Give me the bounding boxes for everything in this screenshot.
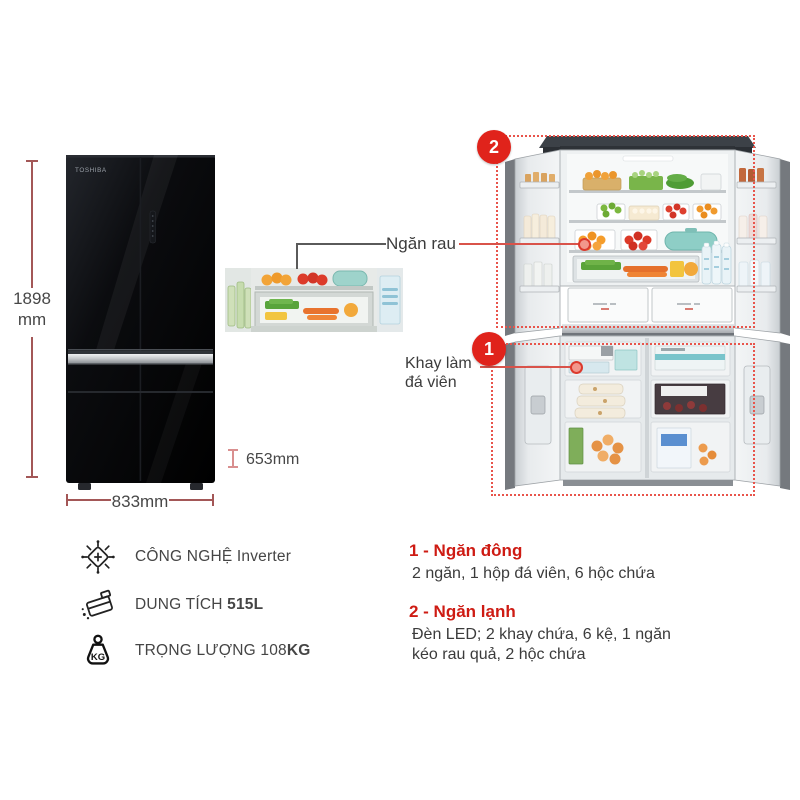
depth-dim-label: 653mm [246, 449, 299, 470]
vegetable-callout-red-line [459, 243, 583, 245]
legend-item-freezer: 1 - Ngăn đông 2 ngăn, 1 hộp đá viên, 6 h… [409, 541, 709, 584]
ice-tray-label: Khay làm đá viên [405, 354, 485, 392]
spec-capacity-text: DUNG TÍCH 515L [135, 596, 263, 614]
vegetable-callout-dot [578, 238, 591, 251]
ice-tray-callout-dot [570, 361, 583, 374]
inset-left-bin [225, 268, 251, 332]
inset-right-bin [377, 268, 403, 332]
vegetable-drawer-label: Ngăn rau [386, 234, 456, 253]
inset-vegetable-drawer [255, 292, 373, 328]
legend-desc-fridge: Đèn LED; 2 khay chứa, 6 kệ, 1 ngăn kéo r… [409, 625, 700, 665]
marker-1-badge: 1 [472, 332, 506, 366]
marker-2-badge: 2 [477, 130, 511, 164]
spec-inverter-text: CÔNG NGHỆ Inverter [135, 548, 291, 566]
height-dim-line-bottom [31, 337, 33, 477]
depth-dim-bottom-tick [228, 466, 238, 468]
legend-desc-freezer: 2 ngăn, 1 hộp đá viên, 6 hộc chứa [409, 564, 700, 584]
vegetable-callout-hline [296, 243, 386, 245]
height-dim-line-top [31, 161, 33, 288]
inverter-circuit-icon [76, 539, 120, 575]
width-dim-right-tick [212, 494, 214, 506]
spec-weight-text: TRỌNG LƯỢNG 108KG [135, 642, 311, 660]
product-infographic: TOSHIBA 1898 mm 833m [0, 0, 800, 800]
height-dim-label: 1898 mm [6, 288, 58, 330]
control-panel [150, 211, 156, 243]
depth-dim-line [232, 450, 234, 467]
closed-fridge-body: TOSHIBA [66, 155, 215, 490]
ice-tray-callout-line [480, 366, 574, 368]
vegetable-callout-vline [296, 244, 298, 269]
spec-row-inverter: CÔNG NGHỆ Inverter [76, 536, 291, 578]
svg-text:KG: KG [91, 652, 105, 663]
legend: 1 - Ngăn đông 2 ngăn, 1 hộp đá viên, 6 h… [409, 541, 709, 683]
brand-logo: TOSHIBA [75, 167, 107, 174]
height-dim-bottom-tick [26, 476, 38, 478]
spec-row-weight: KG TRỌNG LƯỢNG 108KG [76, 630, 311, 672]
width-dim-label: 833mm [110, 491, 170, 512]
spec-row-capacity: DUNG TÍCH 515L [76, 584, 263, 626]
legend-title-freezer: 1 - Ngăn đông [409, 541, 709, 561]
capacity-box-icon [76, 587, 120, 623]
legend-item-fridge: 2 - Ngăn lạnh Đèn LED; 2 khay chứa, 6 kệ… [409, 602, 709, 665]
legend-title-fridge: 2 - Ngăn lạnh [409, 602, 709, 622]
width-dim-line-left [67, 499, 111, 501]
vegetable-drawer-inset-image [225, 268, 403, 332]
width-dim-line-right [169, 499, 214, 501]
closed-fridge-image: TOSHIBA [66, 155, 215, 490]
fridge-section-outline [496, 135, 755, 328]
weight-kg-icon: KG [76, 632, 120, 670]
